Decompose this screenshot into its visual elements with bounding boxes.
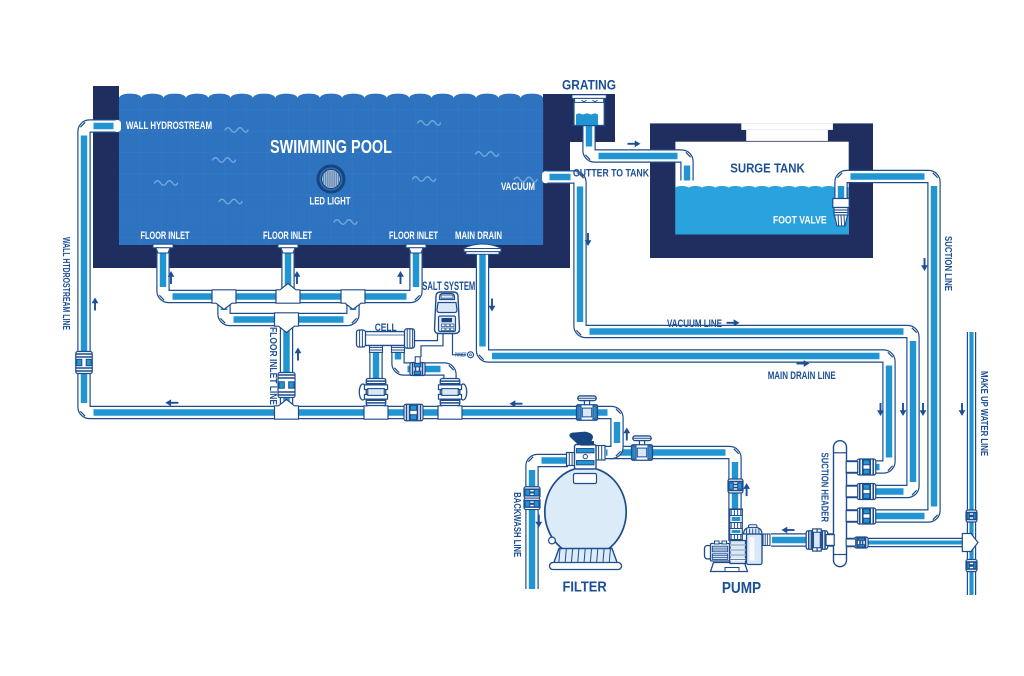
svg-text:MAKE UP WATER LINE: MAKE UP WATER LINE	[978, 371, 989, 456]
svg-text:SWIMMING POOL: SWIMMING POOL	[270, 137, 392, 157]
svg-text:SURGE TANK: SURGE TANK	[730, 161, 805, 175]
svg-text:FLOOR INLET: FLOOR INLET	[141, 230, 190, 242]
svg-text:MAIN DRAIN: MAIN DRAIN	[455, 230, 502, 242]
svg-text:CELL: CELL	[375, 322, 397, 334]
svg-text:SALT SYSTEM: SALT SYSTEM	[422, 279, 475, 293]
svg-text:FLOOR INLET: FLOOR INLET	[389, 230, 438, 242]
svg-text:FILTER: FILTER	[562, 579, 606, 596]
svg-text:VACUUM: VACUUM	[501, 181, 535, 193]
svg-text:SUCTION HEADER: SUCTION HEADER	[818, 453, 829, 523]
svg-text:GUTTER TO TANK: GUTTER TO TANK	[573, 167, 650, 179]
svg-text:SUCTION LINE: SUCTION LINE	[942, 236, 953, 291]
svg-text:FLOOR INLET LINE: FLOOR INLET LINE	[267, 327, 278, 405]
svg-text:BACKWASH LINE: BACKWASH LINE	[511, 492, 522, 557]
svg-text:VACUUM LINE: VACUUM LINE	[667, 318, 722, 330]
svg-text:POWER: POWER	[455, 353, 467, 359]
svg-text:WALL HTDROSTREAM LINE: WALL HTDROSTREAM LINE	[60, 237, 71, 330]
svg-text:FLOOR INLET: FLOOR INLET	[263, 230, 312, 242]
svg-text:PUMP: PUMP	[722, 580, 761, 597]
svg-text:WALL HYDROSTREAM: WALL HYDROSTREAM	[126, 120, 212, 132]
svg-text:FOOT VALVE: FOOT VALVE	[773, 215, 827, 227]
svg-text:GRATING: GRATING	[562, 77, 616, 92]
svg-text:MAIN DRAIN LINE: MAIN DRAIN LINE	[768, 370, 836, 382]
svg-text:LED LIGHT: LED LIGHT	[310, 196, 351, 208]
